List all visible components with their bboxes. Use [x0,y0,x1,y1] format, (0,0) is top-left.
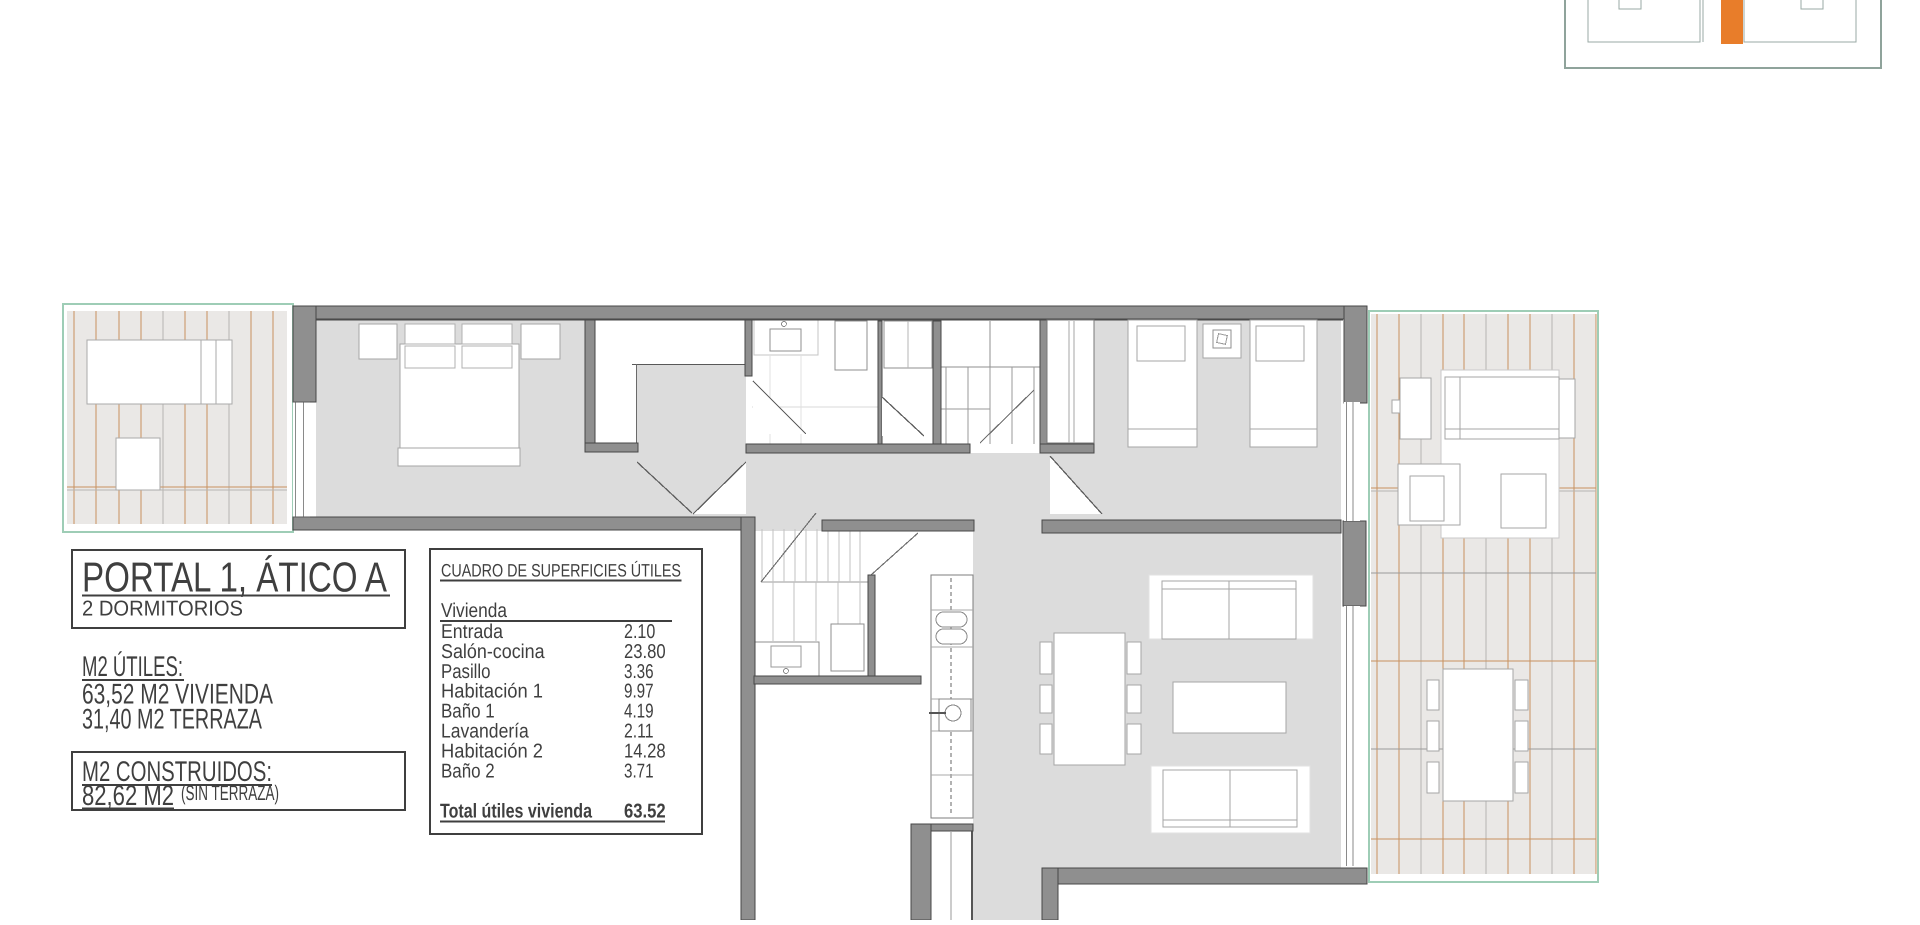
svg-text:CUADRO DE SUPERFICIES ÚTILES: CUADRO DE SUPERFICIES ÚTILES [441,561,681,581]
svg-text:Habitación 1: Habitación 1 [441,681,543,703]
svg-text:Pasillo: Pasillo [441,661,491,683]
svg-text:14.28: 14.28 [624,740,666,762]
svg-text:Vivienda: Vivienda [441,600,508,622]
svg-text:4.19: 4.19 [624,701,654,723]
svg-text:3.71: 3.71 [624,760,654,782]
svg-text:31,40 M2 TERRAZA: 31,40 M2 TERRAZA [82,703,262,735]
svg-text:PORTAL 1, ÁTICO A: PORTAL 1, ÁTICO A [82,554,387,601]
svg-text:Lavandería: Lavandería [441,721,530,743]
svg-text:23.80: 23.80 [624,641,666,663]
svg-text:Salón-cocina: Salón-cocina [441,641,545,663]
svg-text:Total útiles vivienda: Total útiles vivienda [440,801,593,823]
svg-text:Baño 1: Baño 1 [441,701,495,723]
svg-text:2 DORMITORIOS: 2 DORMITORIOS [82,596,243,620]
svg-text:Entrada: Entrada [441,621,504,643]
svg-text:82,62 M2: 82,62 M2 [82,780,174,812]
svg-text:(SIN TERRAZA): (SIN TERRAZA) [181,782,279,805]
svg-text:3.36: 3.36 [624,661,654,683]
svg-text:Baño 2: Baño 2 [441,760,495,782]
svg-text:Habitación 2: Habitación 2 [441,740,543,762]
svg-text:2.10: 2.10 [624,621,655,643]
svg-text:9.97: 9.97 [624,681,654,703]
svg-text:2.11: 2.11 [624,721,654,743]
svg-text:63.52: 63.52 [624,801,666,823]
